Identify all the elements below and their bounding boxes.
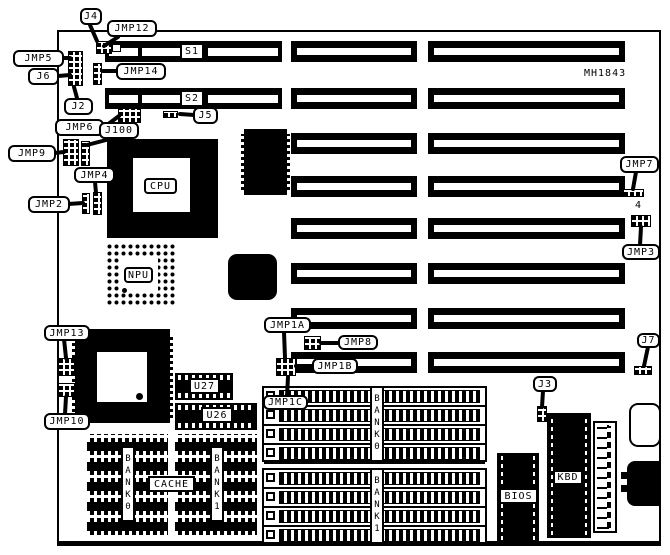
callout-j6: J6 xyxy=(28,68,59,85)
callout-jmp3: JMP3 xyxy=(622,244,660,260)
callout-j7: J7 xyxy=(637,333,660,348)
callout-j3: J3 xyxy=(533,376,557,392)
callout-jmp1c: JMP1C xyxy=(263,395,308,410)
callout-j100: J100 xyxy=(99,122,139,139)
callout-jmp9: JMP9 xyxy=(8,145,56,162)
callout-jmp6: JMP6 xyxy=(55,119,104,136)
callout-j4: J4 xyxy=(80,8,102,25)
callout-jmp14: JMP14 xyxy=(116,63,166,80)
callout-pointer-lines xyxy=(0,0,670,555)
callout-j2: J2 xyxy=(64,98,93,115)
callout-jmp12: JMP12 xyxy=(107,20,157,37)
callout-jmp7: JMP7 xyxy=(620,156,659,173)
callout-jmp5: JMP5 xyxy=(13,50,64,67)
motherboard-diagram: S1 S2 MH1843 CPU NPU xyxy=(0,0,670,555)
callout-jmp2: JMP2 xyxy=(28,196,70,213)
callout-j5: J5 xyxy=(193,107,218,124)
callout-jmp1b: JMP1B xyxy=(312,358,358,374)
callout-jmp1a: JMP1A xyxy=(264,317,311,333)
callout-jmp8: JMP8 xyxy=(338,335,378,350)
callout-jmp10: JMP10 xyxy=(44,413,90,430)
callout-jmp4: JMP4 xyxy=(74,167,115,183)
callout-jmp13: JMP13 xyxy=(44,325,90,341)
